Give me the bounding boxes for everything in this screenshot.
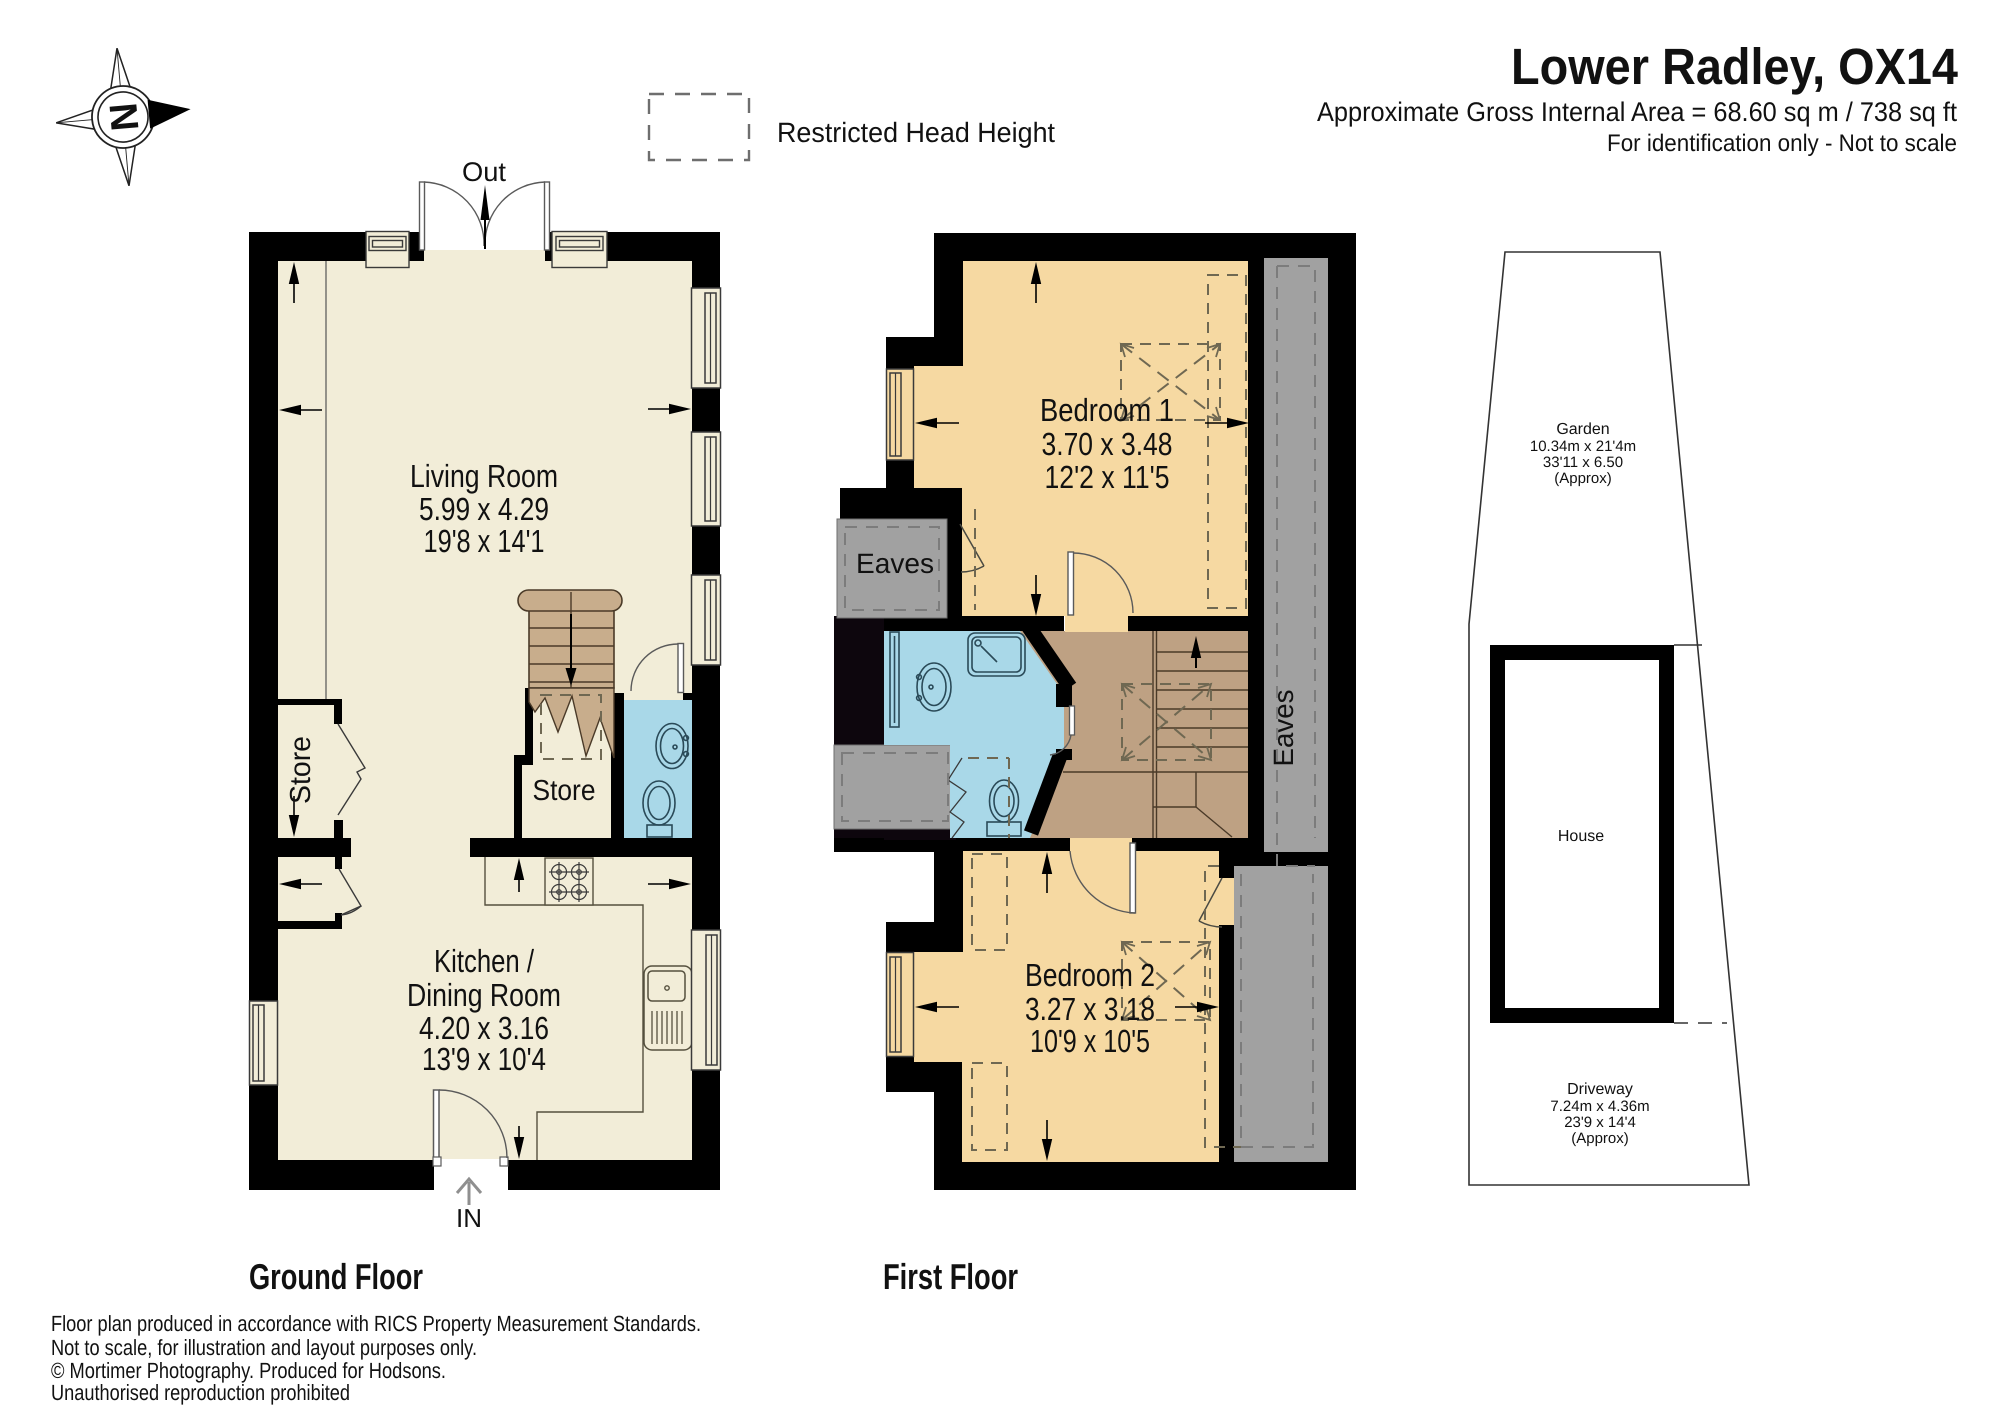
svg-text:10'9 x 10'5: 10'9 x 10'5: [1030, 1023, 1150, 1059]
svg-text:Floor plan produced in accorda: Floor plan produced in accordance with R…: [51, 1311, 701, 1336]
svg-text:Approximate Gross Internal Are: Approximate Gross Internal Area = 68.60 …: [1317, 97, 1957, 127]
svg-text:Bedroom 2: Bedroom 2: [1025, 957, 1155, 993]
svg-text:IN: IN: [456, 1203, 482, 1233]
svg-text:3.27 x 3.18: 3.27 x 3.18: [1025, 991, 1155, 1027]
svg-text:Unauthorised reproduction proh: Unauthorised reproduction prohibited: [51, 1380, 350, 1405]
svg-text:Out: Out: [462, 157, 506, 187]
svg-text:Not to scale, for illustration: Not to scale, for illustration and layou…: [51, 1335, 477, 1360]
svg-text:First Floor: First Floor: [883, 1256, 1018, 1297]
svg-text:12'2 x 11'5: 12'2 x 11'5: [1045, 459, 1170, 495]
svg-text:13'9 x 10'4: 13'9 x 10'4: [422, 1041, 546, 1077]
svg-text:5.99 x 4.29: 5.99 x 4.29: [419, 491, 549, 527]
svg-text:Lower Radley, OX14: Lower Radley, OX14: [1511, 38, 1959, 95]
svg-text:(Approx): (Approx): [1554, 470, 1612, 487]
svg-text:19'8 x 14'1: 19'8 x 14'1: [424, 523, 545, 559]
svg-text:23'9 x 14'4: 23'9 x 14'4: [1564, 1114, 1636, 1131]
svg-text:Garden: Garden: [1556, 421, 1609, 438]
svg-text:Ground Floor: Ground Floor: [249, 1256, 423, 1297]
svg-text:Dining Room: Dining Room: [407, 977, 561, 1013]
svg-text:Kitchen /: Kitchen /: [434, 943, 534, 979]
svg-text:Eaves: Eaves: [1268, 690, 1299, 767]
svg-text:33'11 x 6.50: 33'11 x 6.50: [1543, 454, 1623, 471]
svg-text:Store: Store: [533, 775, 596, 807]
svg-text:(Approx): (Approx): [1571, 1130, 1629, 1147]
svg-text:10.34m x 21'4m: 10.34m x 21'4m: [1530, 438, 1636, 455]
svg-text:Bedroom 1: Bedroom 1: [1040, 392, 1174, 428]
svg-text:7.24m x 4.36m: 7.24m x 4.36m: [1550, 1098, 1649, 1115]
svg-text:House: House: [1558, 828, 1604, 845]
svg-text:Eaves: Eaves: [856, 548, 934, 579]
svg-text:For identification only - Not: For identification only - Not to scale: [1607, 130, 1957, 157]
svg-text:Living Room: Living Room: [410, 458, 558, 494]
svg-text:Store: Store: [285, 736, 317, 804]
svg-text:Driveway: Driveway: [1567, 1081, 1633, 1098]
svg-text:3.70 x 3.48: 3.70 x 3.48: [1042, 426, 1173, 462]
svg-text:Restricted Head Height: Restricted Head Height: [777, 117, 1055, 148]
svg-text:N: N: [100, 101, 145, 133]
